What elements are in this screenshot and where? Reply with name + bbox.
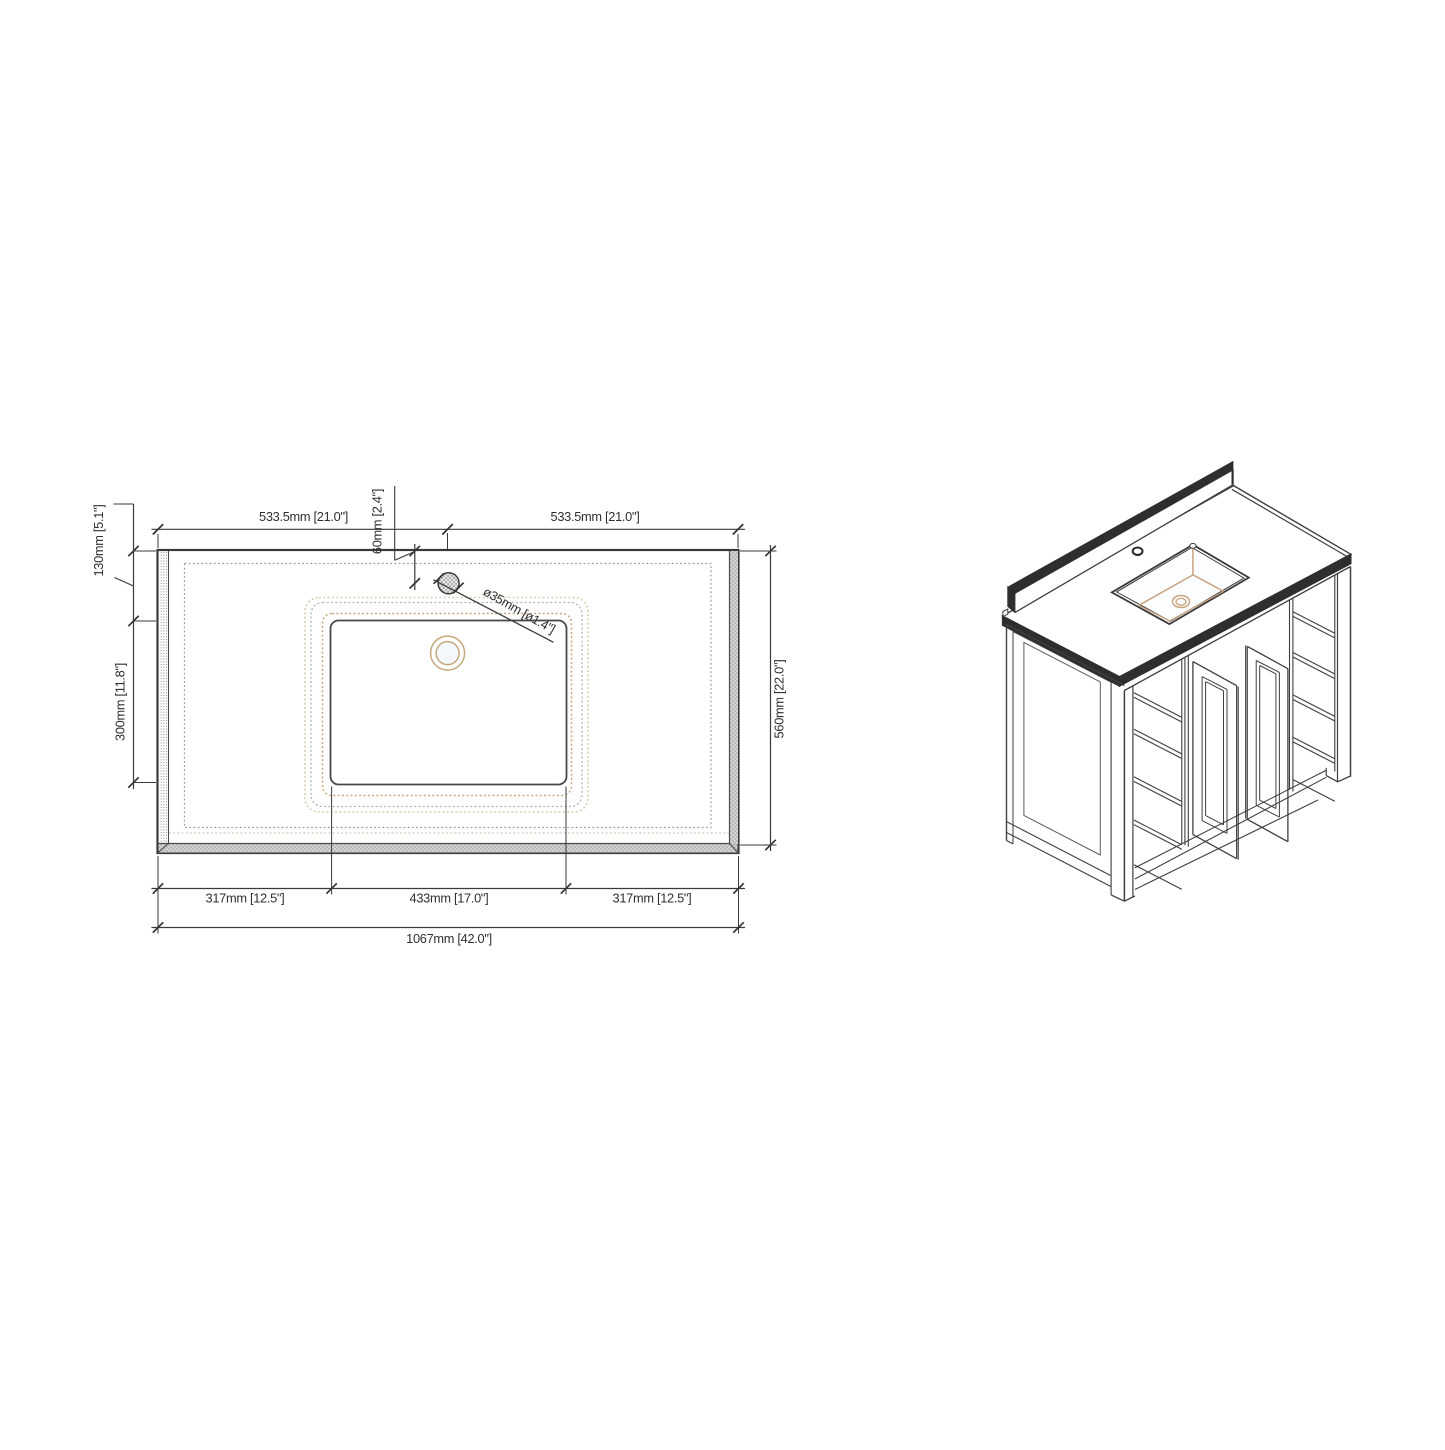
svg-text:130mm [5.1"]: 130mm [5.1"]	[91, 504, 106, 576]
svg-text:533.5mm [21.0"]: 533.5mm [21.0"]	[259, 509, 348, 524]
svg-text:560mm [22.0"]: 560mm [22.0"]	[772, 660, 787, 739]
svg-text:317mm [12.5"]: 317mm [12.5"]	[206, 891, 285, 906]
svg-text:60mm [2.4"]: 60mm [2.4"]	[370, 489, 385, 554]
svg-text:317mm [12.5"]: 317mm [12.5"]	[613, 891, 692, 906]
svg-text:433mm [17.0"]: 433mm [17.0"]	[410, 891, 489, 906]
svg-text:533.5mm [21.0"]: 533.5mm [21.0"]	[551, 509, 640, 524]
svg-text:1067mm [42.0"]: 1067mm [42.0"]	[406, 931, 492, 946]
svg-text:300mm [11.8"]: 300mm [11.8"]	[113, 663, 128, 741]
